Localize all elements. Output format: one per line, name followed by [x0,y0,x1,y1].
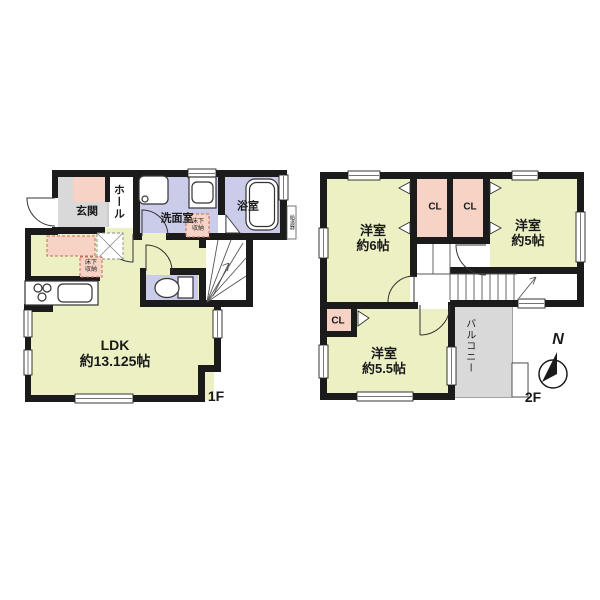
underfloor-storage-label: 床下 収納 [192,219,204,233]
bedroom3-label: 洋室 約5.5帖 [362,347,406,377]
washbasin-bowl-icon [192,182,213,203]
ldk-label-line1: LDK [80,337,151,353]
bathroom-label: 浴室 [237,201,259,214]
entrance-label: 玄関 [76,206,98,219]
closet-label: CL [428,201,441,213]
compass-north-label: N [552,331,564,349]
underfloor-storage-label: 床下 収納 [85,260,97,274]
entrance-mat [73,177,107,202]
bedroom2-label: 洋室 約5帖 [511,219,544,249]
hall-label: ホール [112,184,125,220]
closet-label: CL [331,315,344,327]
balcony [452,305,512,397]
floor1-label: 1F [208,388,224,404]
washroom-label: 洗面室 [161,213,194,226]
washing-machine-drain-icon [142,196,148,202]
ldk-label: LDK 約13.125帖 [80,337,151,369]
balcony-label: バルコニー [463,319,475,374]
toilet-bowl-icon [155,279,179,298]
closet-label: CL [463,201,476,213]
ldk-label-line2: 約13.125帖 [80,353,151,369]
toilet-tank-icon [178,277,193,298]
entrance-door-arc [27,198,55,226]
floorplan-canvas: 玄関 ホール 洗面室 浴室 LDK 約13.125帖 床下 収納 床下 収納 給… [0,0,600,600]
compass-icon [539,352,567,388]
stove-burner-icon [38,293,46,301]
stove-burner-icon [34,284,42,292]
stairs-up-arrow [519,277,536,298]
kitchen-sink-icon [58,284,92,302]
bedroom1-label: 洋室 約6帖 [356,224,389,254]
floor2-label: 2F [525,389,541,405]
floorplan-drawing [0,0,600,600]
pink-dashed-area [47,236,95,256]
water-heater-label: 給湯器 [288,215,294,230]
stove-burner-icon [43,284,51,292]
